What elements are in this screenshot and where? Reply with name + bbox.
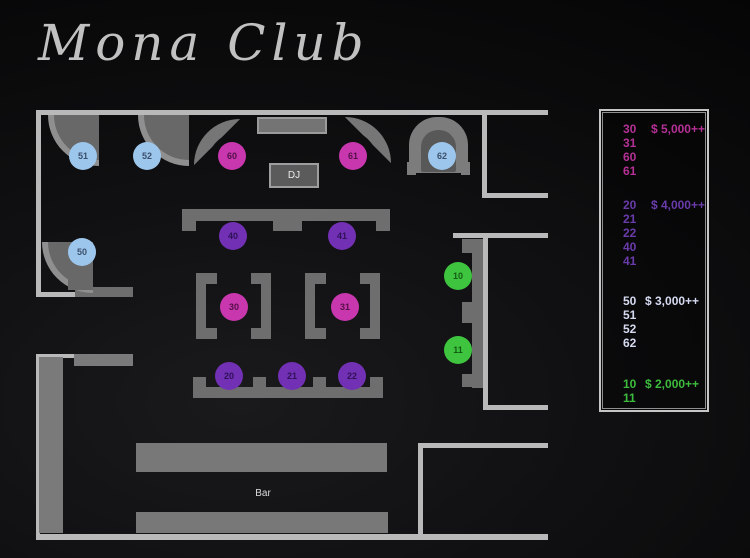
bench-comb-top-tooth xyxy=(273,221,302,231)
club-floorplan: Mona Club xyxy=(0,0,750,558)
legend-table-num: 41 xyxy=(623,254,644,268)
legend-price: $ 5,000++ xyxy=(651,122,705,136)
table-50[interactable]: 50 xyxy=(68,238,96,266)
booth-bracket-30-arm xyxy=(206,328,217,339)
bench-comb-right-tooth xyxy=(462,374,472,387)
table-22[interactable]: 22 xyxy=(338,362,366,390)
wall-right-stub-top xyxy=(482,110,548,115)
legend-table-num: 21 xyxy=(623,212,644,226)
legend-table-num: 60 xyxy=(623,150,644,164)
legend-row: 10$ 2,000++ xyxy=(623,377,705,391)
legend-table-num: 20 xyxy=(623,198,643,212)
legend-row: 40 xyxy=(623,240,705,254)
bench-comb-bottom-tooth xyxy=(313,377,326,388)
legend-table-num: 50 xyxy=(623,294,644,308)
table-30[interactable]: 30 xyxy=(220,293,248,321)
legend-table-num: 11 xyxy=(623,391,644,405)
legend-table-num: 30 xyxy=(623,122,643,136)
legend-price: $ 4,000++ xyxy=(651,198,705,212)
legend-table-num: 52 xyxy=(623,322,644,336)
legend-table-num: 22 xyxy=(623,226,644,240)
table-61[interactable]: 61 xyxy=(339,142,367,170)
bench-comb-top xyxy=(182,209,390,221)
wall-right-stub-mid xyxy=(482,193,548,198)
wall-backroom-bottom xyxy=(418,534,548,540)
bar-counter-top xyxy=(136,443,387,472)
bench-comb-top-tooth xyxy=(376,221,390,231)
table-10[interactable]: 10 xyxy=(444,262,472,290)
legend-table-num: 51 xyxy=(623,308,644,322)
wall-left-stub xyxy=(36,292,75,297)
booth-62-foot xyxy=(461,162,470,175)
booth-bracket-30-arm xyxy=(206,273,217,284)
legend-table-num: 40 xyxy=(623,240,644,254)
table-62[interactable]: 62 xyxy=(428,142,456,170)
wall-bracket-vertical xyxy=(483,233,488,410)
legend-price: $ 2,000++ xyxy=(645,377,699,391)
table-20[interactable]: 20 xyxy=(215,362,243,390)
legend-table-num: 61 xyxy=(623,164,644,178)
legend-row: 30$ 5,000++ xyxy=(623,122,705,136)
table-21[interactable]: 21 xyxy=(278,362,306,390)
legend-row: 22 xyxy=(623,226,705,240)
legend-row: 11 xyxy=(623,391,705,405)
bar-counter-bottom xyxy=(136,512,388,533)
legend-row: 60 xyxy=(623,150,705,164)
table-31[interactable]: 31 xyxy=(331,293,359,321)
booth-bracket-31-arm xyxy=(315,328,326,339)
bench-comb-bottom-tooth xyxy=(253,377,266,388)
legend-row: 52 xyxy=(623,322,705,336)
legend-table-num: 10 xyxy=(623,377,644,391)
booth-62-foot xyxy=(407,162,416,175)
legend-row: 20$ 4,000++ xyxy=(623,198,705,212)
booth-bracket-31-arm xyxy=(360,328,370,339)
bench-left-top xyxy=(74,354,133,366)
bench-comb-bottom-tooth xyxy=(193,377,206,388)
booth-bracket-31-arm xyxy=(360,273,370,284)
legend-group-3000: 50$ 3,000++ 51 52 62 xyxy=(623,294,705,350)
legend-row: 41 xyxy=(623,254,705,268)
booth-bracket-30-arm xyxy=(251,273,261,284)
wall-left xyxy=(36,110,41,297)
legend-row: 50$ 3,000++ xyxy=(623,294,705,308)
legend-row: 51 xyxy=(623,308,705,322)
booth-bracket-31-right xyxy=(370,273,380,339)
table-41[interactable]: 41 xyxy=(328,222,356,250)
legend-row: 21 xyxy=(623,212,705,226)
dj-stage xyxy=(257,117,327,134)
wall-bracket-top xyxy=(453,233,548,238)
price-legend: 30$ 5,000++ 31 60 61 20$ 4,000++ 21 22 4… xyxy=(599,109,709,412)
table-52[interactable]: 52 xyxy=(133,142,161,170)
bench-comb-bottom-tooth xyxy=(370,377,383,388)
legend-group-2000: 10$ 2,000++ 11 xyxy=(623,377,705,405)
bench-comb-right-tooth xyxy=(462,302,472,323)
dj-booth: DJ xyxy=(269,163,319,188)
booth-bracket-31-arm xyxy=(315,273,326,284)
booth-bracket-30-arm xyxy=(251,328,261,339)
bench-comb-top-tooth xyxy=(182,221,196,231)
table-60[interactable]: 60 xyxy=(218,142,246,170)
table-51[interactable]: 51 xyxy=(69,142,97,170)
legend-group-5000: 30$ 5,000++ 31 60 61 xyxy=(623,122,705,178)
table-11[interactable]: 11 xyxy=(444,336,472,364)
wall-bracket-bottom xyxy=(483,405,548,410)
bar-label: Bar xyxy=(233,488,293,499)
legend-group-4000: 20$ 4,000++ 21 22 40 41 xyxy=(623,198,705,268)
legend-price: $ 3,000++ xyxy=(645,294,699,308)
price-legend-inner: 30$ 5,000++ 31 60 61 20$ 4,000++ 21 22 4… xyxy=(602,112,706,409)
legend-table-num: 31 xyxy=(623,136,644,150)
legend-table-num: 62 xyxy=(623,336,644,350)
table-40[interactable]: 40 xyxy=(219,222,247,250)
legend-row: 61 xyxy=(623,164,705,178)
booth-bracket-30-left xyxy=(196,273,206,339)
page-title: Mona Club xyxy=(38,14,370,72)
bench-left-vertical xyxy=(39,357,63,533)
wall-top xyxy=(36,110,487,115)
curved-booth-50-ext xyxy=(68,266,93,290)
wall-bottom xyxy=(36,534,420,540)
legend-row: 62 xyxy=(623,336,705,350)
wall-right-upper xyxy=(482,110,487,198)
booth-bracket-31-left xyxy=(305,273,315,339)
legend-row: 31 xyxy=(623,136,705,150)
bench-comb-right xyxy=(472,239,483,388)
wall-backroom-top xyxy=(418,443,548,448)
booth-bracket-30-right xyxy=(261,273,271,339)
wall-backroom-left xyxy=(418,443,423,540)
bench-comb-right-tooth xyxy=(462,239,472,253)
